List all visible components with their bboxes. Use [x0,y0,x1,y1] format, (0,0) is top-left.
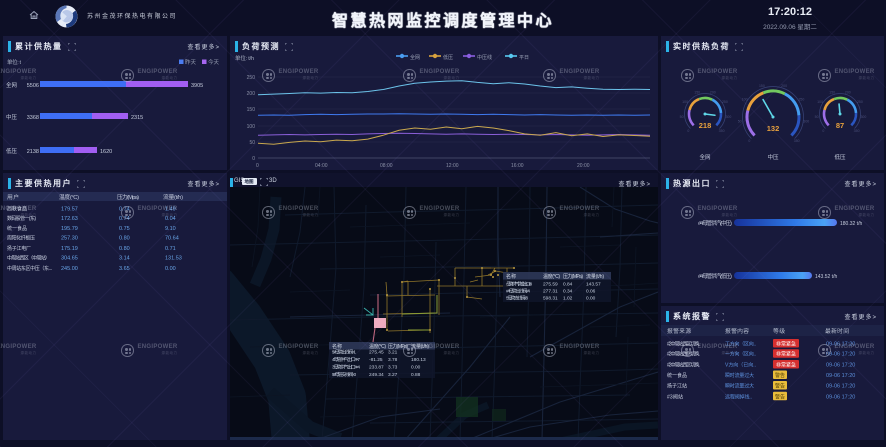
svg-text:中压: 中压 [6,113,17,121]
svg-text:压力(MPa): 压力(MPa) [563,273,583,280]
svg-text:3.21: 3.21 [388,350,398,356]
svg-text:180.32 t/h: 180.32 t/h [840,221,862,227]
svg-text:143.57: 143.57 [586,282,601,288]
svg-text:非常紧急: 非常紧急 [776,362,796,369]
svg-text:5#母管出线阀×1: 5#母管出线阀×1 [332,349,356,356]
svg-text:#3阀站: #3阀站 [667,393,683,400]
svg-text:今天: 今天 [208,58,219,66]
svg-text:200: 200 [781,84,787,88]
svg-text:0.04: 0.04 [165,216,176,222]
svg-text:#2中周站西区切换..: #2中周站西区切换.. [667,351,700,358]
svg-text:50: 50 [738,119,742,123]
svg-text:警告: 警告 [775,383,785,390]
svg-text:143.52 t/h: 143.52 t/h [815,274,837,280]
svg-text:#2中周站西区切换..: #2中周站西区切换.. [667,362,700,369]
svg-text:100: 100 [817,100,823,104]
svg-text:一方向（区向..: 一方向（区向.. [725,351,756,358]
svg-text:5母管支线阀#3: 5母管支线阀#3 [506,295,528,302]
svg-text:0.00: 0.00 [586,296,596,302]
svg-text:179.57: 179.57 [61,207,78,213]
svg-text:598.31: 598.31 [543,296,558,302]
svg-text:#2中周站西区切换..: #2中周站西区切换.. [667,341,700,348]
svg-text:275.45: 275.45 [369,350,384,356]
svg-text:3母管供气出口#×4: 3母管供气出口#×4 [332,364,360,371]
svg-text:流量(t/h): 流量(t/h) [411,343,429,350]
svg-text:0: 0 [687,129,689,133]
svg-text:中压线: 中压线 [477,54,492,61]
svg-text:250: 250 [798,98,804,102]
svg-text:0: 0 [822,129,824,133]
svg-text:300: 300 [860,115,866,119]
svg-text:中周站西区（中周站）: 中周站西区（中周站） [7,255,50,262]
svg-text:131.53: 131.53 [165,256,182,262]
svg-text:195.79: 195.79 [61,226,78,232]
svg-text:09-06 17:20: 09-06 17:20 [826,363,855,369]
svg-text:150: 150 [694,90,700,94]
svg-text:100: 100 [742,98,748,102]
svg-text:平日: 平日 [519,55,529,61]
svg-text:全网: 全网 [700,153,711,161]
svg-text:08:00: 08:00 [380,163,393,169]
svg-text:09-06 17:20: 09-06 17:20 [826,384,855,390]
svg-text:0: 0 [748,139,750,143]
svg-text:12:00: 12:00 [446,163,459,169]
svg-text:0.74: 0.74 [119,216,130,222]
svg-text:温度(°C): 温度(°C) [59,193,79,201]
svg-text:50: 50 [249,140,255,146]
svg-text:V方向（已向..: V方向（已向.. [725,362,756,369]
svg-text:0.74: 0.74 [119,207,130,213]
svg-text:0.34: 0.34 [563,289,573,295]
svg-text:3.65: 3.65 [119,266,130,272]
svg-text:远程阀掉线..: 远程阀掉线.. [725,393,752,400]
svg-text:5#母管支线阀×3: 5#母管支线阀×3 [332,371,356,378]
svg-text:全网: 全网 [410,54,420,61]
svg-text:流量(t/h): 流量(t/h) [163,193,183,201]
svg-text:200: 200 [845,90,851,94]
svg-text:瞬时流量过大: 瞬时流量过大 [725,372,754,379]
svg-text:单位: t: 单位: t [7,58,21,66]
svg-text:#4母管供汽(中压): #4母管供汽(中压) [698,219,732,227]
svg-text:西联食品: 西联食品 [7,206,27,213]
svg-text:275.59: 275.59 [543,282,558,288]
svg-text:流量(t/h): 流量(t/h) [586,273,604,280]
svg-text:3905: 3905 [191,83,203,89]
svg-text:304.65: 304.65 [61,256,78,262]
svg-text:工方向（区向..: 工方向（区向.. [725,341,756,348]
svg-text:-81.25: -81.25 [369,357,383,363]
svg-text:2315: 2315 [131,115,143,121]
svg-text:名称: 名称 [332,343,342,350]
svg-text:233.87: 233.87 [369,365,384,371]
svg-text:249.34: 249.34 [369,372,384,378]
svg-text:3.14: 3.14 [119,256,130,262]
svg-text:1620: 1620 [100,149,112,155]
svg-text:1.02: 1.02 [563,296,573,302]
svg-text:单位: t/h: 单位: t/h [235,54,254,62]
svg-text:警告: 警告 [775,372,785,379]
svg-text:0.00: 0.00 [165,266,176,272]
svg-text:09-06 17:20: 09-06 17:20 [826,373,855,379]
svg-text:母管供气管道出口#3: 母管供气管道出口#3 [506,281,532,288]
svg-text:0.80: 0.80 [119,246,130,252]
svg-text:0: 0 [252,156,255,162]
svg-text:扬子江电厂: 扬子江电厂 [7,245,31,252]
svg-text:最新时间: 最新时间 [825,327,849,335]
svg-text:09-06 17:20: 09-06 17:20 [826,342,855,348]
svg-text:4母管供气出口#×7: 4母管供气出口#×7 [332,356,360,363]
svg-text:09-06 17:20: 09-06 17:20 [826,394,855,400]
svg-text:3.73: 3.73 [388,365,398,371]
svg-text:2138: 2138 [27,149,39,155]
svg-text:压力(MPa): 压力(MPa) [388,343,408,350]
svg-text:扬子江站: 扬子江站 [667,383,687,390]
svg-text:3368: 3368 [27,115,39,121]
svg-text:09-06 17:20: 09-06 17:20 [826,352,855,358]
svg-text:300: 300 [725,115,731,119]
svg-text:9.10: 9.10 [165,226,176,232]
svg-text:50: 50 [680,115,684,119]
svg-text:中周站东区中压（东...: 中周站东区中压（东... [7,265,52,272]
svg-text:低压: 低压 [443,54,453,61]
svg-text:0.75: 0.75 [119,226,130,232]
svg-text:非常紧急: 非常紧急 [776,351,796,358]
svg-text:非常紧急: 非常紧急 [776,341,796,348]
svg-text:250: 250 [857,100,863,104]
svg-text:5506: 5506 [27,83,39,89]
svg-text:100: 100 [682,100,688,104]
svg-text:172.63: 172.63 [61,216,78,222]
svg-text:报警内容: 报警内容 [725,327,749,335]
svg-text:200: 200 [710,90,716,94]
svg-text:277.31: 277.31 [543,289,558,295]
svg-text:300: 300 [803,119,809,123]
svg-text:350: 350 [854,129,860,133]
svg-text:统一食品: 统一食品 [667,372,687,379]
svg-text:257.30: 257.30 [61,236,78,242]
svg-text:50: 50 [815,115,819,119]
svg-text:245.00: 245.00 [61,266,78,272]
svg-text:16:00: 16:00 [511,163,524,169]
svg-text:0: 0 [256,163,259,169]
svg-text:150: 150 [247,107,256,113]
svg-text:350: 350 [794,139,800,143]
svg-text:0.80: 0.80 [119,236,130,242]
svg-text:218: 218 [699,121,712,130]
svg-text:瞬时流量过大: 瞬时流量过大 [725,383,754,390]
svg-text:#4母管出线阀#4: #4母管出线阀#4 [506,288,530,295]
svg-text:175.19: 175.19 [61,246,78,252]
svg-text:昨天: 昨天 [185,58,196,66]
svg-text:200: 200 [247,91,256,97]
svg-text:#4母管供汽(低压): #4母管供汽(低压) [698,272,732,280]
svg-text:周阳化纤板压: 周阳化纤板压 [7,235,35,242]
svg-text:150: 150 [829,90,835,94]
svg-text:350: 350 [719,129,725,133]
svg-text:0.88: 0.88 [411,372,421,378]
svg-text:中压: 中压 [768,153,779,161]
svg-text:250: 250 [722,100,728,104]
svg-text:用户: 用户 [7,193,19,201]
svg-text:180.13: 180.13 [411,357,426,363]
svg-text:1.49: 1.49 [165,207,176,213]
svg-text:250: 250 [247,75,256,81]
svg-text:0.71: 0.71 [165,246,176,252]
svg-text:统一食品: 统一食品 [7,225,27,232]
svg-text:温度(°C): 温度(°C) [369,343,386,350]
svg-text:0.06: 0.06 [586,289,596,295]
svg-text:20:00: 20:00 [577,163,590,169]
svg-text:70.64: 70.64 [165,236,179,242]
svg-text:04:00: 04:00 [315,163,328,169]
svg-text:100: 100 [247,124,256,130]
svg-text:警告: 警告 [775,393,785,400]
svg-text:3.27: 3.27 [388,372,398,378]
svg-text:低压: 低压 [6,147,17,155]
svg-text:0.84: 0.84 [563,282,573,288]
svg-text:名称: 名称 [506,273,516,280]
svg-text:数码股管一(东): 数码股管一(东) [7,215,36,222]
svg-text:87: 87 [836,121,844,130]
svg-text:150: 150 [759,84,765,88]
svg-text:温度(°C): 温度(°C) [543,273,560,280]
svg-text:压力(Mpa): 压力(Mpa) [117,193,139,201]
svg-text:3.78: 3.78 [388,357,398,363]
svg-text:低压: 低压 [835,153,846,161]
svg-text:报警来源: 报警来源 [667,327,691,335]
svg-text:0.00: 0.00 [411,365,421,371]
svg-text:132: 132 [767,124,780,133]
svg-text:全网: 全网 [6,81,17,89]
svg-text:等级: 等级 [773,327,785,335]
